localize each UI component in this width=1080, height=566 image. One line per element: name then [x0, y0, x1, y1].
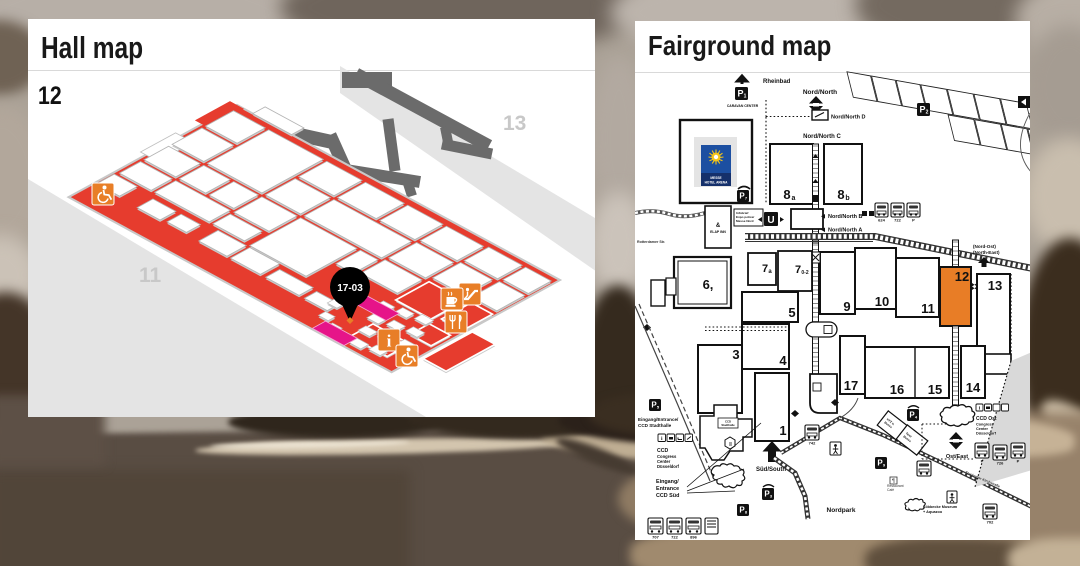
svg-text:14: 14 [966, 380, 981, 395]
svg-text:742: 742 [809, 441, 816, 446]
svg-text:6,: 6, [703, 277, 714, 292]
svg-text:a: a [792, 195, 796, 202]
svg-text:Eingang/Entrance/: Eingang/Entrance/ [638, 417, 679, 422]
svg-text:CARAVAN CENTER: CARAVAN CENTER [727, 104, 759, 108]
svg-text:Löbbecke Museum: Löbbecke Museum [923, 505, 958, 509]
svg-text:11: 11 [139, 264, 162, 287]
svg-text:1: 1 [744, 94, 747, 100]
svg-text:+ Aquazoo: + Aquazoo [923, 510, 943, 514]
svg-text:Center: Center [976, 427, 989, 431]
svg-text:702: 702 [987, 520, 994, 525]
svg-text:P: P [919, 105, 925, 115]
svg-text:ELAP INN: ELAP INN [710, 230, 726, 234]
svg-text:Düsseldorf: Düsseldorf [976, 432, 997, 436]
svg-text:P: P [981, 459, 984, 464]
svg-text:16: 16 [890, 382, 904, 397]
svg-text:Süd/South: Süd/South [756, 467, 786, 473]
svg-text:Nord/North: Nord/North [803, 89, 837, 96]
svg-text:15: 15 [928, 382, 942, 397]
svg-text:13: 13 [988, 278, 1002, 293]
svg-text:Nordpark: Nordpark [827, 507, 856, 514]
svg-text:1: 1 [779, 423, 786, 438]
svg-text:Nord/North B: Nord/North B [828, 214, 863, 220]
svg-text:CCD Ost: CCD Ost [976, 416, 997, 422]
svg-text:2: 2 [926, 110, 929, 116]
svg-text:7: 7 [795, 264, 801, 276]
svg-text:8: 8 [837, 187, 844, 202]
svg-text:i: i [387, 332, 392, 351]
svg-text:624: 624 [878, 218, 885, 223]
svg-text:b: b [845, 195, 849, 202]
svg-text:MESSE: MESSE [710, 176, 721, 180]
svg-text:17: 17 [844, 378, 858, 393]
svg-text:Düsseldorf: Düsseldorf [657, 464, 679, 469]
svg-text:10: 10 [875, 294, 889, 309]
svg-text:Eingang/: Eingang/ [656, 479, 679, 485]
svg-text:CCD Süd: CCD Süd [656, 493, 679, 499]
svg-text:Rotterdamer Str.: Rotterdamer Str. [637, 240, 665, 244]
svg-text:Entrance: Entrance [656, 486, 679, 492]
svg-text:722: 722 [894, 218, 901, 223]
svg-text:U: U [767, 215, 774, 226]
svg-text:17-03: 17-03 [337, 283, 363, 294]
svg-text:707: 707 [652, 535, 659, 540]
svg-text:¶: ¶ [892, 479, 895, 485]
svg-text:Rheinbad: Rheinbad [763, 79, 791, 85]
svg-text:11: 11 [921, 301, 935, 316]
svg-text:Nord/North A: Nord/North A [828, 228, 862, 234]
svg-text:9: 9 [843, 299, 850, 314]
svg-text:CCD Stadthalle: CCD Stadthalle [638, 423, 672, 428]
svg-text:Nord/North D: Nord/North D [831, 115, 866, 121]
svg-text:4: 4 [779, 353, 787, 368]
svg-text:&: & [716, 223, 721, 229]
svg-text:Stadthalle: Stadthalle [721, 423, 735, 427]
svg-text:Messe Nord: Messe Nord [736, 219, 754, 223]
svg-text:726: 726 [997, 461, 1004, 466]
svg-text:13: 13 [503, 112, 526, 135]
svg-text:12: 12 [955, 269, 969, 284]
svg-text:P: P [737, 89, 743, 99]
svg-text:8: 8 [783, 187, 790, 202]
svg-text:Congress: Congress [976, 423, 994, 427]
svg-text:5: 5 [788, 305, 795, 320]
svg-text:(Nord-Ost): (Nord-Ost) [973, 244, 996, 249]
svg-text:(North-East): (North-East) [973, 250, 1000, 255]
svg-text:P: P [1017, 459, 1020, 464]
svg-text:P: P [912, 218, 915, 223]
svg-text:Nord/North C: Nord/North C [803, 134, 841, 140]
svg-text:0-2: 0-2 [801, 270, 808, 276]
svg-text:3: 3 [732, 347, 739, 362]
svg-text:Café: Café [887, 488, 894, 492]
svg-text:HOTEL ARENA: HOTEL ARENA [705, 181, 729, 185]
svg-text:896: 896 [690, 535, 697, 540]
svg-text:722: 722 [671, 535, 678, 540]
svg-text:7: 7 [762, 263, 768, 275]
